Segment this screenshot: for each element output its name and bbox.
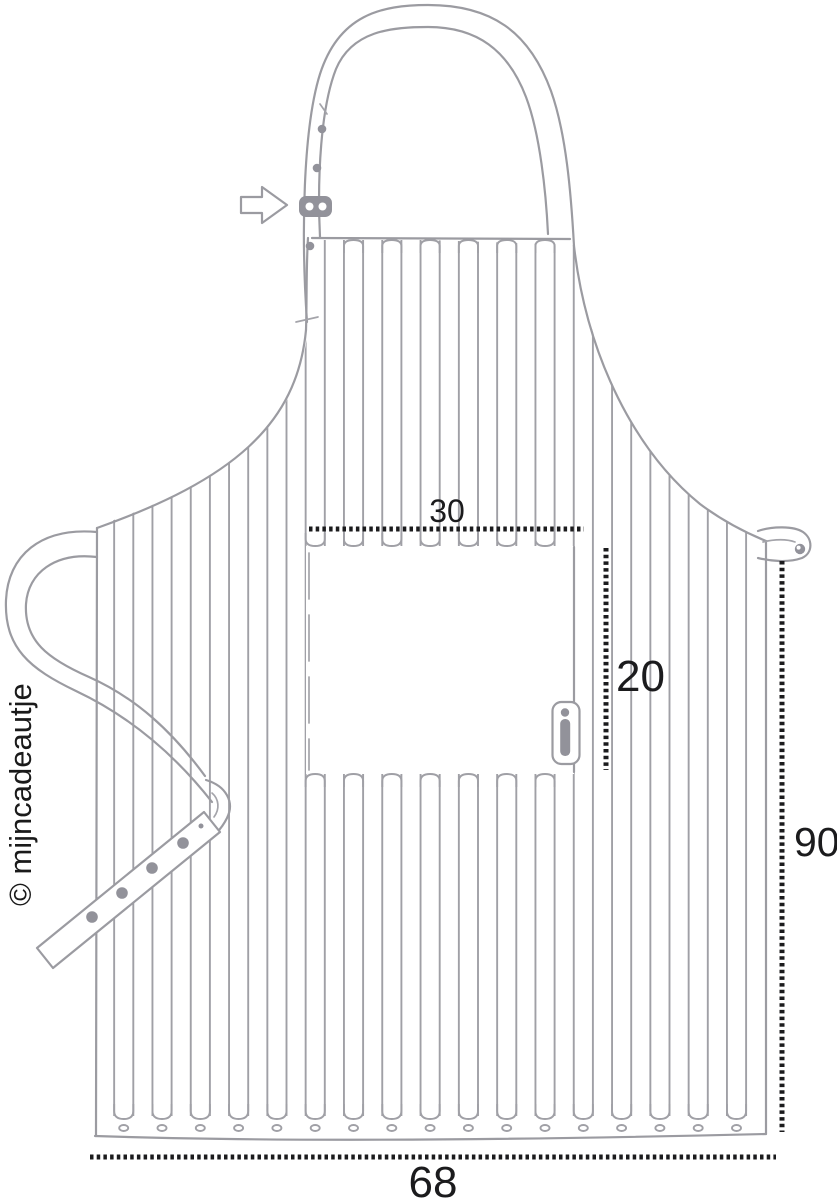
pocket-width-label: 30 [429, 493, 465, 529]
bottom-hem-edge [95, 1134, 766, 1140]
snap-button [318, 125, 327, 134]
strap-adjuster-buckle [299, 196, 332, 217]
tie-strap-end [37, 812, 220, 968]
snap-button [313, 164, 322, 173]
buckle-hole [306, 203, 314, 211]
pocket-area [306, 546, 574, 774]
apron-dimension-diagram: 30 20 90 68 © mijncadeautje [0, 0, 837, 1200]
buckle-hole [319, 203, 327, 211]
snap-button [199, 824, 204, 829]
snap-button [86, 911, 98, 923]
copyright-text: © mijncadeautje [3, 683, 38, 906]
left-waist-tie [6, 531, 230, 968]
pocket [306, 546, 574, 774]
neck-strap [296, 5, 574, 322]
tie-knot-crease [212, 793, 218, 817]
right-arrow-icon [241, 187, 287, 223]
snap-button [306, 242, 315, 251]
tie-loop-inner [26, 556, 205, 776]
snap-button [177, 837, 189, 849]
apron-length-label: 90 [794, 819, 837, 865]
bib-top-edge [312, 238, 570, 239]
apron-width-label: 68 [409, 1158, 458, 1200]
snap-hole [797, 546, 801, 550]
snap-button [116, 887, 128, 899]
label-logo-mark [560, 719, 570, 756]
snap-button [146, 862, 158, 874]
apron-drawing: 30 20 90 68 © mijncadeautje [0, 0, 837, 1200]
tie-loop-inner [763, 540, 795, 542]
pocket-height-label: 20 [616, 652, 665, 701]
left-flare-curve [97, 330, 306, 528]
label-logo-mark [561, 708, 569, 716]
neck-strap-inner-edge [319, 27, 548, 237]
left-side-edge [96, 528, 97, 1136]
